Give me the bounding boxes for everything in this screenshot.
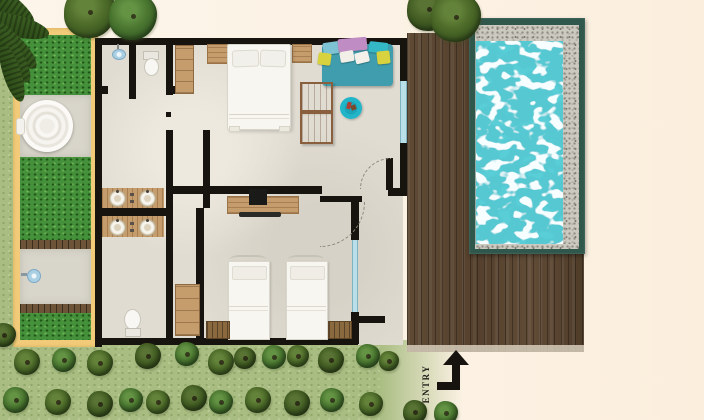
toilet-lower-bowl bbox=[124, 309, 141, 330]
outdoor-shower-stem bbox=[21, 273, 27, 276]
bed-foot bbox=[229, 126, 240, 132]
pool-gravel-top bbox=[475, 25, 579, 41]
wall-stub bbox=[95, 86, 108, 94]
sliding-glass-door-master bbox=[400, 81, 407, 143]
grass-patch bbox=[20, 313, 91, 340]
wood-mat bbox=[20, 240, 91, 249]
tv-cabinet-box bbox=[249, 189, 267, 205]
duvet-fold bbox=[229, 310, 268, 311]
wardrobe-upper bbox=[175, 45, 194, 94]
soap-tray bbox=[130, 200, 134, 203]
tv-screen bbox=[239, 212, 281, 217]
duvet-fold bbox=[229, 114, 289, 115]
bench bbox=[328, 321, 352, 339]
pillow bbox=[232, 266, 267, 280]
wall-shower-divider bbox=[129, 45, 136, 99]
soap-tray bbox=[130, 229, 134, 232]
wall-left bbox=[95, 38, 102, 347]
pillow bbox=[290, 266, 325, 280]
sink bbox=[109, 190, 126, 207]
sink bbox=[139, 219, 156, 236]
pool-gravel-right bbox=[562, 41, 579, 244]
daybed-cushion bbox=[376, 50, 390, 64]
wall-hall-vertical bbox=[203, 130, 210, 208]
sink bbox=[139, 190, 156, 207]
wood-mat bbox=[20, 304, 91, 313]
duvet-fold bbox=[229, 306, 268, 307]
tree-icon bbox=[434, 401, 458, 420]
deck-edge bbox=[407, 345, 584, 352]
wall-entry-stub bbox=[357, 316, 385, 323]
dresser-cabinet bbox=[300, 82, 333, 112]
wall-tv bbox=[166, 186, 322, 194]
wall-right-upper bbox=[400, 38, 407, 77]
shower-stem bbox=[117, 44, 119, 49]
grass-patch bbox=[20, 157, 91, 240]
duvet-fold bbox=[287, 310, 326, 311]
outdoor-bathtub bbox=[21, 100, 73, 152]
wall-inner-vertical-a bbox=[166, 45, 173, 95]
vanity-upper bbox=[102, 188, 164, 208]
sink bbox=[109, 219, 126, 236]
vanity-lower bbox=[102, 216, 164, 237]
toilet-upper-bowl bbox=[144, 58, 159, 76]
daybed-cushion bbox=[317, 52, 332, 66]
tree-icon bbox=[109, 0, 157, 40]
soap-tray bbox=[130, 193, 134, 196]
pool-gravel-bottom bbox=[475, 244, 579, 249]
tree-icon bbox=[403, 400, 427, 420]
entry-arrow-shaft-horizontal bbox=[437, 382, 460, 390]
wall-bath-divider bbox=[102, 208, 173, 216]
headboard-panel-left bbox=[207, 44, 228, 64]
entry-label: ENTRY bbox=[421, 362, 433, 406]
indoor-shower-head-icon bbox=[112, 49, 126, 60]
bathtub-step bbox=[16, 118, 25, 135]
entry-arrow-head bbox=[443, 350, 469, 365]
ottoman bbox=[340, 97, 362, 119]
pillow bbox=[232, 50, 260, 68]
soap-tray bbox=[130, 222, 134, 225]
bench bbox=[206, 321, 230, 339]
ottoman-decor bbox=[350, 104, 356, 110]
toilet-lower-tank bbox=[125, 328, 141, 337]
wardrobe-lower bbox=[175, 284, 200, 336]
dresser-cabinet bbox=[300, 112, 333, 144]
twin-bed bbox=[228, 261, 270, 340]
door-hinge-dot bbox=[166, 112, 171, 117]
twin-bed bbox=[286, 261, 328, 340]
master-bed bbox=[227, 44, 291, 130]
pillow bbox=[260, 50, 287, 68]
pool-water bbox=[475, 41, 563, 244]
floor-plan-image: ENTRY bbox=[0, 0, 704, 420]
duvet-fold bbox=[287, 306, 326, 307]
headboard-panel-right bbox=[292, 44, 312, 63]
plunge-pool bbox=[469, 18, 585, 254]
duvet-fold bbox=[229, 118, 289, 119]
wall-inner-vertical-b bbox=[166, 130, 173, 338]
bed-foot bbox=[279, 126, 290, 132]
outdoor-shower-head-icon bbox=[27, 269, 41, 283]
glass-window-twin bbox=[352, 240, 358, 312]
